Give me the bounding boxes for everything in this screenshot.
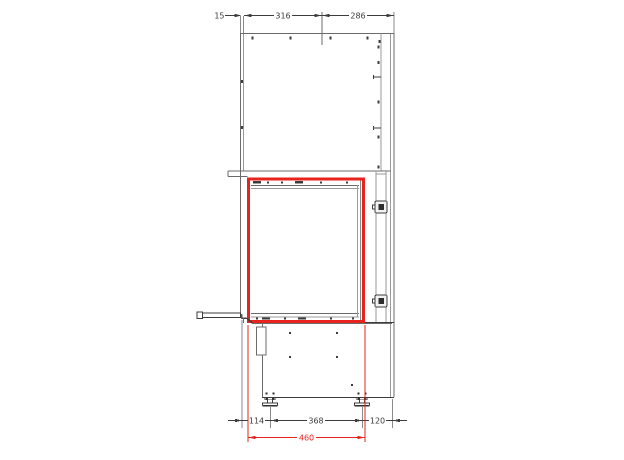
- door-clip-marks: [253, 181, 354, 320]
- mounting-bracket-upper: [373, 201, 388, 213]
- hood-t-marks: [374, 75, 382, 130]
- dim-label-460: 460: [299, 433, 314, 442]
- base-screw-marks: [289, 332, 353, 386]
- dim-label-316: 316: [275, 11, 290, 20]
- leveling-foot-right: [355, 393, 370, 406]
- door-frame: [251, 180, 361, 321]
- chassis-outline: [228, 34, 394, 398]
- dim-label-368: 368: [308, 416, 323, 425]
- opening-highlight-rect: [249, 179, 364, 322]
- dimension-bottom: 114 368 120: [228, 416, 407, 426]
- dim-label-15: 15: [214, 11, 224, 20]
- extension-lines: [241, 12, 395, 428]
- leveling-foot-left: [263, 393, 278, 406]
- fireplace-insert-drawing: 15 316 286 114 368 120 460: [0, 0, 624, 460]
- mounting-bracket-lower: [373, 295, 388, 307]
- dim-label-120: 120: [370, 416, 385, 425]
- dim-label-286: 286: [350, 11, 365, 20]
- hood-screw-marks: [241, 37, 380, 169]
- door-handle: [197, 312, 253, 323]
- dimension-top: 15 316 286: [214, 11, 394, 21]
- dim-label-114: 114: [249, 416, 264, 425]
- technical-drawing-page: 15 316 286 114 368 120 460: [0, 0, 624, 460]
- base-cabinet: [252, 324, 394, 398]
